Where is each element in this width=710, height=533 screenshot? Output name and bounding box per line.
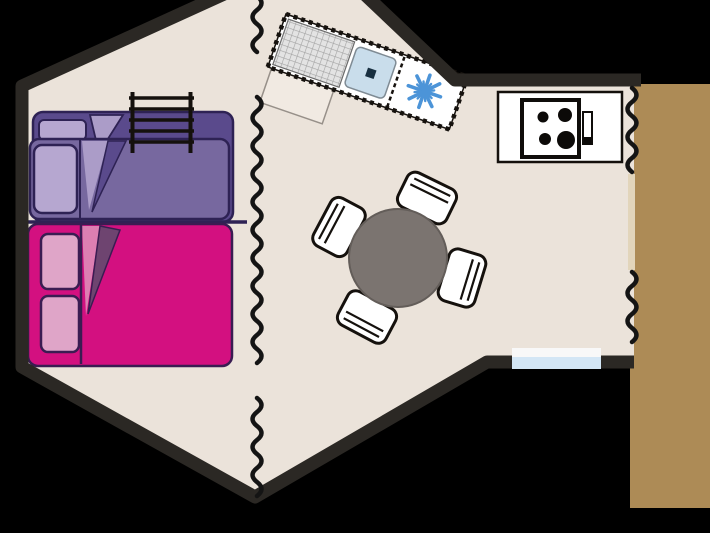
burner	[557, 131, 575, 149]
double-pillow-2	[41, 296, 79, 352]
sleeping-area	[28, 92, 247, 366]
dining-table	[349, 209, 447, 307]
double-pillow-1	[41, 234, 79, 289]
floorplan-canvas	[0, 0, 710, 533]
bunk-pillow-top	[39, 120, 86, 140]
stove-control-knob	[584, 137, 592, 145]
burner	[538, 112, 549, 123]
hob-panel	[522, 100, 579, 157]
bunk-pillow	[34, 145, 77, 213]
deck	[630, 84, 710, 508]
stove	[498, 92, 622, 162]
window	[512, 348, 601, 369]
deck-threshold	[628, 174, 635, 270]
window-glass	[512, 357, 601, 369]
burner	[539, 133, 551, 145]
double-bed	[28, 224, 232, 366]
burner	[558, 108, 572, 122]
window-frame	[512, 348, 601, 357]
floorplan-screenshot	[0, 0, 710, 533]
